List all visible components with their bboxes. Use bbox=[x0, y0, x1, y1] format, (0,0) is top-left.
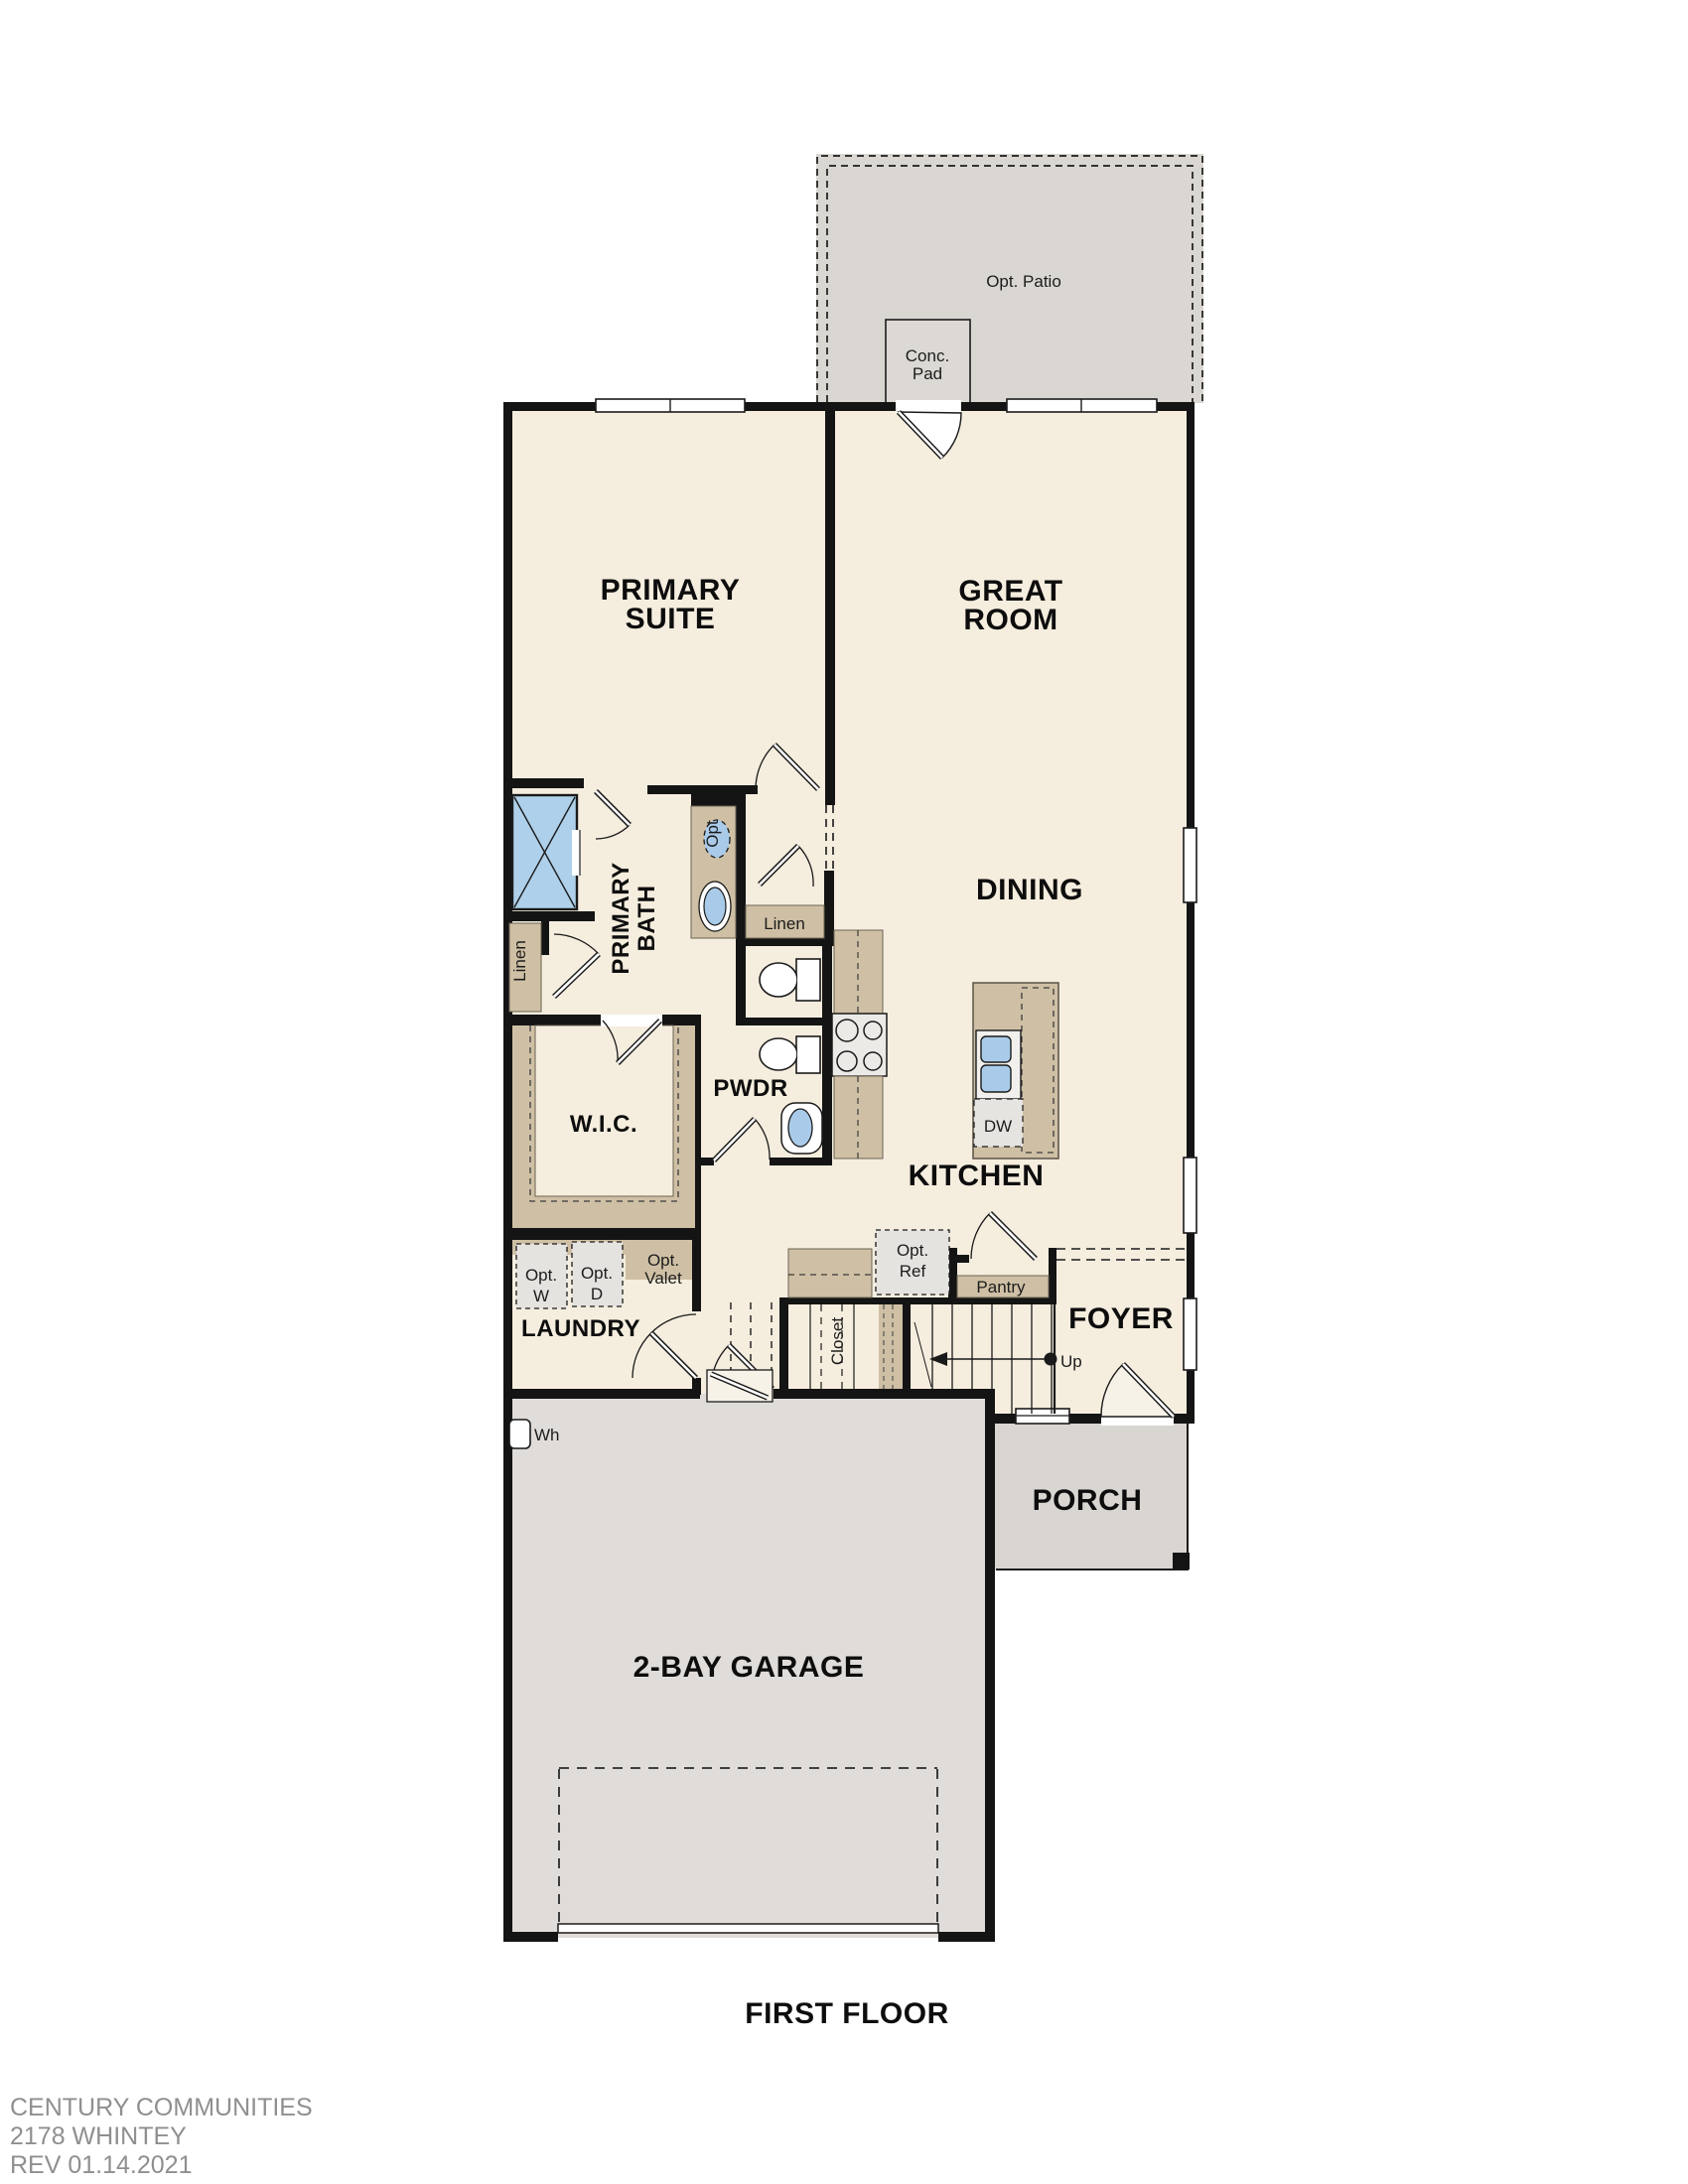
svg-text:FOYER: FOYER bbox=[1068, 1302, 1174, 1335]
svg-text:2-BAY GARAGE: 2-BAY GARAGE bbox=[633, 1651, 865, 1684]
svg-text:Pantry: Pantry bbox=[976, 1278, 1026, 1297]
svg-text:Up: Up bbox=[1060, 1352, 1082, 1371]
svg-text:ROOM: ROOM bbox=[963, 604, 1057, 636]
svg-text:Conc.: Conc. bbox=[906, 346, 949, 365]
svg-text:Opt.: Opt. bbox=[897, 1241, 928, 1260]
svg-text:REV 01.14.2021: REV 01.14.2021 bbox=[10, 2151, 192, 2179]
svg-text:PORCH: PORCH bbox=[1033, 1484, 1143, 1517]
svg-text:Opt.: Opt. bbox=[525, 1266, 557, 1285]
svg-text:LAUNDRY: LAUNDRY bbox=[521, 1315, 640, 1342]
svg-text:Valet: Valet bbox=[644, 1269, 682, 1288]
svg-text:Pad: Pad bbox=[913, 364, 942, 383]
svg-text:Linen: Linen bbox=[510, 940, 529, 982]
svg-text:DINING: DINING bbox=[976, 874, 1083, 906]
svg-text:FIRST FLOOR: FIRST FLOOR bbox=[745, 1997, 948, 2030]
svg-text:CENTURY COMMUNITIES: CENTURY COMMUNITIES bbox=[10, 2094, 313, 2121]
svg-text:BATH: BATH bbox=[633, 886, 660, 952]
svg-text:W: W bbox=[533, 1287, 549, 1305]
svg-text:Closet: Closet bbox=[828, 1317, 847, 1365]
svg-text:PWDR: PWDR bbox=[713, 1075, 787, 1102]
svg-text:2178 WHINTEY: 2178 WHINTEY bbox=[10, 2122, 187, 2150]
svg-text:Opt. Patio: Opt. Patio bbox=[986, 272, 1061, 291]
svg-text:Wh: Wh bbox=[534, 1426, 560, 1444]
svg-text:KITCHEN: KITCHEN bbox=[909, 1160, 1045, 1192]
svg-text:Opt: Opt bbox=[703, 820, 722, 848]
svg-text:Linen: Linen bbox=[764, 914, 805, 933]
svg-text:W.I.C.: W.I.C. bbox=[570, 1111, 637, 1138]
svg-text:PRIMARY: PRIMARY bbox=[608, 862, 634, 974]
svg-text:DW: DW bbox=[984, 1117, 1012, 1136]
svg-text:Opt.: Opt. bbox=[647, 1251, 679, 1270]
svg-text:SUITE: SUITE bbox=[626, 603, 716, 635]
svg-text:Ref: Ref bbox=[900, 1262, 926, 1281]
svg-text:D: D bbox=[591, 1285, 603, 1303]
svg-text:Opt.: Opt. bbox=[581, 1264, 613, 1283]
